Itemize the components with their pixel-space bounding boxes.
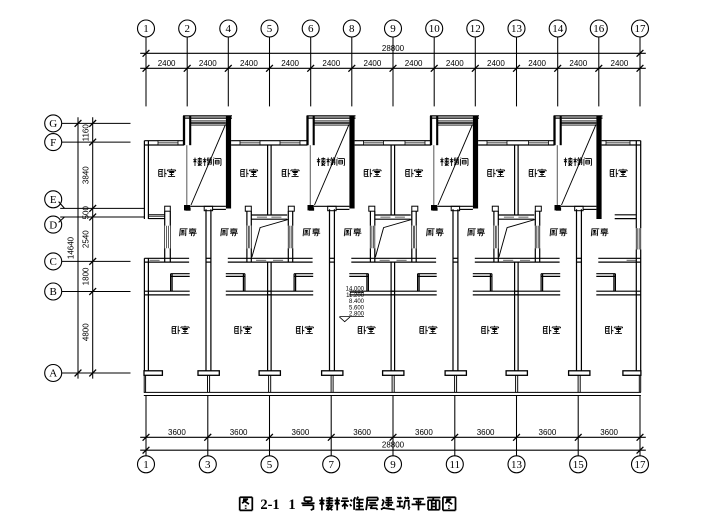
svg-text:15: 15 (573, 459, 585, 471)
svg-text:16: 16 (593, 23, 605, 35)
svg-text:14640: 14640 (66, 236, 75, 259)
svg-text:11.200: 11.200 (346, 293, 365, 299)
svg-text:3: 3 (205, 459, 211, 471)
svg-text:2400: 2400 (199, 59, 217, 68)
svg-text:5: 5 (267, 459, 273, 471)
svg-text:7: 7 (328, 459, 334, 471)
svg-text:5: 5 (267, 23, 273, 35)
svg-text:3600: 3600 (168, 428, 186, 437)
svg-text:2400: 2400 (487, 59, 505, 68)
svg-text:3600: 3600 (230, 428, 248, 437)
svg-text:10: 10 (429, 23, 441, 35)
svg-text:1: 1 (143, 459, 149, 471)
svg-text:A: A (49, 368, 57, 380)
svg-text:1: 1 (288, 497, 295, 513)
svg-text:2400: 2400 (528, 59, 546, 68)
svg-text:8: 8 (349, 23, 355, 35)
svg-text:8.400: 8.400 (349, 299, 365, 305)
svg-text:500: 500 (82, 205, 91, 219)
svg-text:2400: 2400 (569, 59, 587, 68)
svg-text:3600: 3600 (600, 428, 618, 437)
svg-text:3600: 3600 (353, 428, 371, 437)
svg-text:2: 2 (184, 23, 190, 35)
svg-text:2400: 2400 (281, 59, 299, 68)
svg-text:C: C (50, 256, 57, 268)
svg-text:3600: 3600 (477, 428, 495, 437)
svg-text:2400: 2400 (405, 59, 423, 68)
svg-text:2400: 2400 (158, 59, 176, 68)
svg-text:2-1: 2-1 (260, 497, 279, 513)
svg-text:6: 6 (308, 23, 314, 35)
svg-text:17: 17 (635, 23, 647, 35)
svg-text:2400: 2400 (611, 59, 629, 68)
svg-text:1800: 1800 (82, 267, 91, 285)
svg-text:9: 9 (390, 23, 396, 35)
svg-text:3840: 3840 (82, 166, 91, 184)
svg-text:28800: 28800 (382, 441, 405, 450)
svg-text:2540: 2540 (82, 230, 91, 248)
svg-text:14.000: 14.000 (346, 287, 365, 293)
svg-text:5.600: 5.600 (349, 305, 365, 311)
svg-text:4800: 4800 (82, 323, 91, 341)
svg-text:E: E (50, 194, 57, 206)
svg-text:28800: 28800 (382, 44, 405, 53)
svg-text:D: D (49, 219, 57, 231)
svg-text:2400: 2400 (364, 59, 382, 68)
svg-text:1: 1 (143, 23, 149, 35)
svg-text:G: G (49, 118, 57, 130)
svg-text:11: 11 (450, 459, 461, 471)
svg-text:4: 4 (226, 23, 232, 35)
svg-text:F: F (50, 137, 56, 149)
svg-text:13: 13 (511, 23, 523, 35)
svg-text:14: 14 (552, 23, 564, 35)
svg-text:3600: 3600 (292, 428, 310, 437)
svg-text:3600: 3600 (539, 428, 557, 437)
svg-text:B: B (50, 286, 57, 298)
svg-text:9: 9 (390, 459, 396, 471)
svg-text:2400: 2400 (446, 59, 464, 68)
svg-text:13: 13 (511, 459, 523, 471)
svg-text:2400: 2400 (322, 59, 340, 68)
svg-text:2400: 2400 (240, 59, 258, 68)
svg-text:12: 12 (470, 23, 481, 35)
svg-text:1160: 1160 (82, 124, 91, 142)
svg-text:17: 17 (635, 459, 647, 471)
svg-text:3600: 3600 (415, 428, 433, 437)
